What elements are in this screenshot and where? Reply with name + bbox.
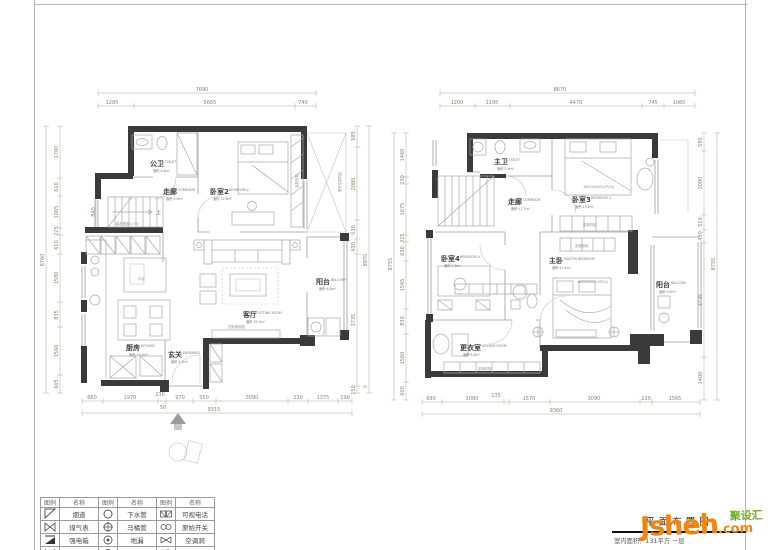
dim-label: 690 [426, 396, 436, 402]
dim-label: 1195 [486, 100, 499, 106]
room-name-en: BEDROOM-3 [591, 196, 611, 200]
dim-label: 230 [400, 175, 406, 185]
dim-label: 610 [54, 182, 60, 192]
dim-label: 1285 [106, 100, 119, 106]
bed-spec-note: 1800X2000(2PCS) [577, 280, 609, 284]
room-name-en: BALCONY [671, 281, 686, 285]
dim-label: 600 [400, 386, 406, 396]
room-name-en: MASTER BEDROOM [564, 257, 595, 261]
room-name-en: BEDROOM-4 [460, 255, 480, 259]
dim-label: 830 [400, 316, 406, 326]
dim-label: 840 [91, 207, 97, 217]
dim-label: 1200 [451, 100, 464, 106]
weak-box-icon [41, 547, 60, 550]
room-area: 面积:6.8m² [319, 286, 337, 291]
room-area: 面积:4.6m² [153, 168, 171, 173]
room-name: 更衣室 [460, 343, 481, 352]
room-name: 玄关 [168, 350, 182, 359]
bed-spec-note: 1800X2000(2PCS) [583, 185, 615, 189]
drain-outlet-icon [99, 547, 118, 550]
legend-table: 图例 名称 图例 名称 图例 名称 烟道 下水管 可视电话 煤气表 马桶管 原始… [40, 497, 215, 550]
legend-name: 空调洞 [176, 534, 215, 547]
room-area: 面积:3.9m² [497, 166, 515, 171]
legend-header: 名称 [60, 498, 99, 508]
legend-name: 可视电话 [176, 508, 215, 521]
legend-name: 下水管 [118, 508, 157, 521]
wardrobe-note: 定制衣柜 [478, 366, 492, 371]
dim-label: 5665 [204, 100, 217, 106]
platform-note: 平台 [138, 276, 145, 281]
ac-hole-icon [157, 534, 176, 547]
dim-label: 4470 [570, 100, 583, 106]
dim-label: 430 [698, 231, 704, 241]
drain-pipe-icon [99, 508, 118, 521]
legend-name: 马桶管 [118, 521, 157, 534]
room-name: 阳台 [656, 280, 670, 289]
dim-label: 1060 [673, 100, 686, 106]
dim-label: 2080 [466, 396, 479, 402]
dim-label: 1565 [400, 279, 406, 292]
dim-label: 630 [400, 246, 406, 256]
tv-cabinet-note: 定制电视柜 [228, 324, 246, 329]
legend-row: 强电箱 地漏 空调洞 [41, 534, 215, 547]
room-name: 阳台 [316, 277, 330, 286]
dim-label: 1570 [523, 396, 536, 402]
legend-name: 排水管 [118, 547, 157, 550]
legend-name: 地漏 [118, 534, 157, 547]
room-name-en: BALCONY [331, 278, 346, 282]
power-box-icon [41, 534, 60, 547]
legend-name: 弱电箱 [60, 547, 99, 550]
dim-label: 230 [293, 395, 303, 401]
flue-icon [41, 508, 60, 521]
gas-meter-icon [41, 521, 60, 534]
legend-name: 煤气表 [60, 521, 99, 534]
dim-label: 1675 [400, 203, 406, 216]
dim-label: 50 [160, 405, 166, 411]
dim-label: 190 [340, 395, 350, 401]
dim-label: 585 [351, 131, 357, 141]
legend-header: 名称 [176, 498, 215, 508]
room-name: 卧室4 [441, 254, 460, 263]
room-area: 面积:2.2m² [171, 359, 189, 364]
dim-label: 8755 [711, 258, 717, 271]
room-name-en: TOILET [164, 160, 176, 164]
room-name-en: ENTRANCE [183, 351, 200, 355]
legend-name: 进水口 [176, 547, 215, 550]
dim-label: 605 [54, 379, 60, 389]
room-name: 卧室2 [210, 187, 229, 196]
video-phone-icon [157, 508, 176, 521]
dim-label: 1560 [400, 352, 406, 365]
room-area: 面积:14.5m² [129, 352, 149, 357]
dim-label: 3090 [246, 395, 259, 401]
floor-drain-icon [99, 534, 118, 547]
room-name: 客厅 [242, 310, 257, 319]
room-area: 面积:6.6m² [463, 352, 481, 357]
room-name: 主卫 [494, 157, 508, 166]
wardrobe-note: 定制衣柜 [294, 174, 299, 188]
dim-label: 595 [698, 137, 704, 147]
dim-label: 7690 [196, 87, 209, 93]
ac-unit-note: 室外空调机位 [337, 171, 342, 192]
dim-label: 150 [351, 385, 357, 395]
legend-header: 图例 [41, 498, 60, 508]
dim-label: 8755 [388, 258, 394, 271]
room-name-en: CORRIDOR [523, 198, 541, 202]
dim-label: 2080 [351, 178, 357, 191]
dim-label: 1560 [54, 345, 60, 358]
dim-label: 29 [363, 385, 367, 389]
dim-label: 1565 [669, 396, 682, 402]
legend-header: 图例 [157, 498, 176, 508]
room-area: 面积:12.6m² [213, 196, 233, 201]
room-area: 面积:9.8m² [659, 289, 677, 294]
dim-label: 8670 [554, 87, 567, 93]
room-name-en: CORRIDOR [178, 188, 196, 192]
room-name-en: TOILET [508, 158, 520, 162]
room-name-en: BEDROOM-2 [229, 188, 249, 192]
dim-label: 660 [87, 395, 97, 401]
room-name: 走廊 [163, 187, 177, 196]
room-name-en: KITCHEN [141, 344, 155, 348]
watermark-chinese: 聚设汇 [730, 510, 763, 522]
room-area: 面积:13.4m² [552, 265, 572, 270]
drawing-sheet: 7690 1285 5665 740 9315 660 1970 230 50 … [0, 0, 780, 550]
watermark-tld: .com [718, 521, 754, 537]
legend-name: 烟道 [60, 508, 99, 521]
room-name: 卧室3 [572, 195, 591, 204]
entrance-arrow-icon [169, 413, 202, 463]
dim-label: 230 [155, 392, 165, 398]
dim-label: 230 [641, 396, 651, 402]
room-name: 厨房 [126, 343, 140, 352]
dim-label: 510 [698, 217, 704, 227]
legend-header: 名称 [118, 498, 157, 508]
wardrobe-note: 定制衣柜 [583, 222, 597, 227]
dim-label: 9360 [550, 408, 563, 414]
dim-label: 1400 [698, 372, 704, 385]
dim-label: 835 [54, 310, 60, 320]
room-name-en: SITTING ROOM [258, 311, 282, 315]
legend-row: 弱电箱 排水管 进水口 [41, 547, 215, 550]
stairs-up-label: 上 [156, 209, 161, 216]
dim-label: 430 [351, 242, 357, 252]
room-area: 面积:13.2m² [575, 204, 595, 209]
original-switch-icon [157, 521, 176, 534]
water-inlet-icon [157, 547, 176, 550]
room-name: 公卫 [150, 160, 164, 168]
dim-label: 1460 [400, 149, 406, 162]
room-name-en: DOCKER ROOM [482, 344, 507, 348]
room-area: 面积:11.7m² [511, 206, 531, 211]
dim-label: 3735 [351, 314, 357, 327]
dim-label: 740 [298, 100, 308, 106]
dim-label: 225 [54, 226, 60, 236]
room-area: 面积:7.8m² [444, 263, 462, 268]
toilet-pipe-icon [99, 521, 118, 534]
watermark-logo: Jsheh.com 聚设汇 [640, 510, 754, 541]
dim-label: 610 [54, 240, 60, 250]
dim-label: 1700 [54, 146, 60, 159]
watermark-text: Jsheh [639, 509, 718, 543]
dim-label: 9315 [208, 407, 221, 413]
dim-label: 8760 [40, 254, 46, 267]
floor-plan-canvas: 7690 1285 5665 740 9315 660 1970 230 50 … [0, 0, 780, 550]
dim-label: 530 [351, 225, 357, 235]
room-area: 面积:9.0m² [166, 196, 184, 201]
dim-label: 225 [400, 233, 406, 243]
dim-label: 1580 [54, 272, 60, 285]
legend-name: 原始开关 [176, 521, 215, 534]
legend-header-row: 图例 名称 图例 名称 图例 名称 [41, 498, 215, 508]
dim-label: 1065 [54, 206, 60, 219]
dim-label: 745 [648, 100, 658, 106]
stairs-tread-note: 踏步宽度(170) [116, 221, 139, 226]
legend-header: 图例 [99, 498, 118, 508]
dim-label: 135 [491, 393, 501, 399]
wardrobe-note: 定制衣柜 [575, 243, 589, 248]
dim-label: 8970 [363, 254, 369, 267]
dim-label: 1375 [317, 395, 330, 401]
legend-row: 烟道 下水管 可视电话 [41, 508, 215, 521]
legend-name: 强电箱 [60, 534, 99, 547]
dim-label: 1970 [124, 395, 137, 401]
dim-label: 2080 [698, 177, 704, 190]
room-name: 走廊 [508, 197, 522, 206]
dim-label: 550 [199, 395, 209, 401]
room-name: 主卧 [549, 256, 563, 265]
floor-plan-right: 主卫 TOILET 面积:3.9m² 走廊 CORRIDOR 面积:11.7m²… [426, 133, 702, 378]
dim-label: 970 [175, 395, 185, 401]
dim-label: 3090 [588, 396, 601, 402]
room-area: 面积:33.0m² [246, 319, 266, 324]
legend-row: 煤气表 马桶管 原始开关 [41, 521, 215, 534]
